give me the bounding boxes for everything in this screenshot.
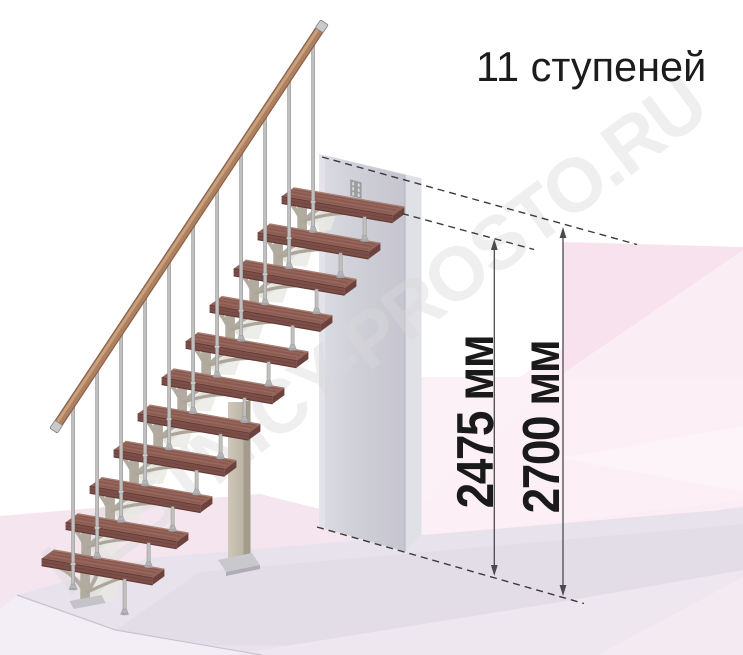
svg-text:2475 мм: 2475 мм: [448, 336, 505, 509]
svg-text:2700 мм: 2700 мм: [514, 341, 571, 514]
svg-text:11 ступеней: 11 ступеней: [476, 43, 706, 90]
